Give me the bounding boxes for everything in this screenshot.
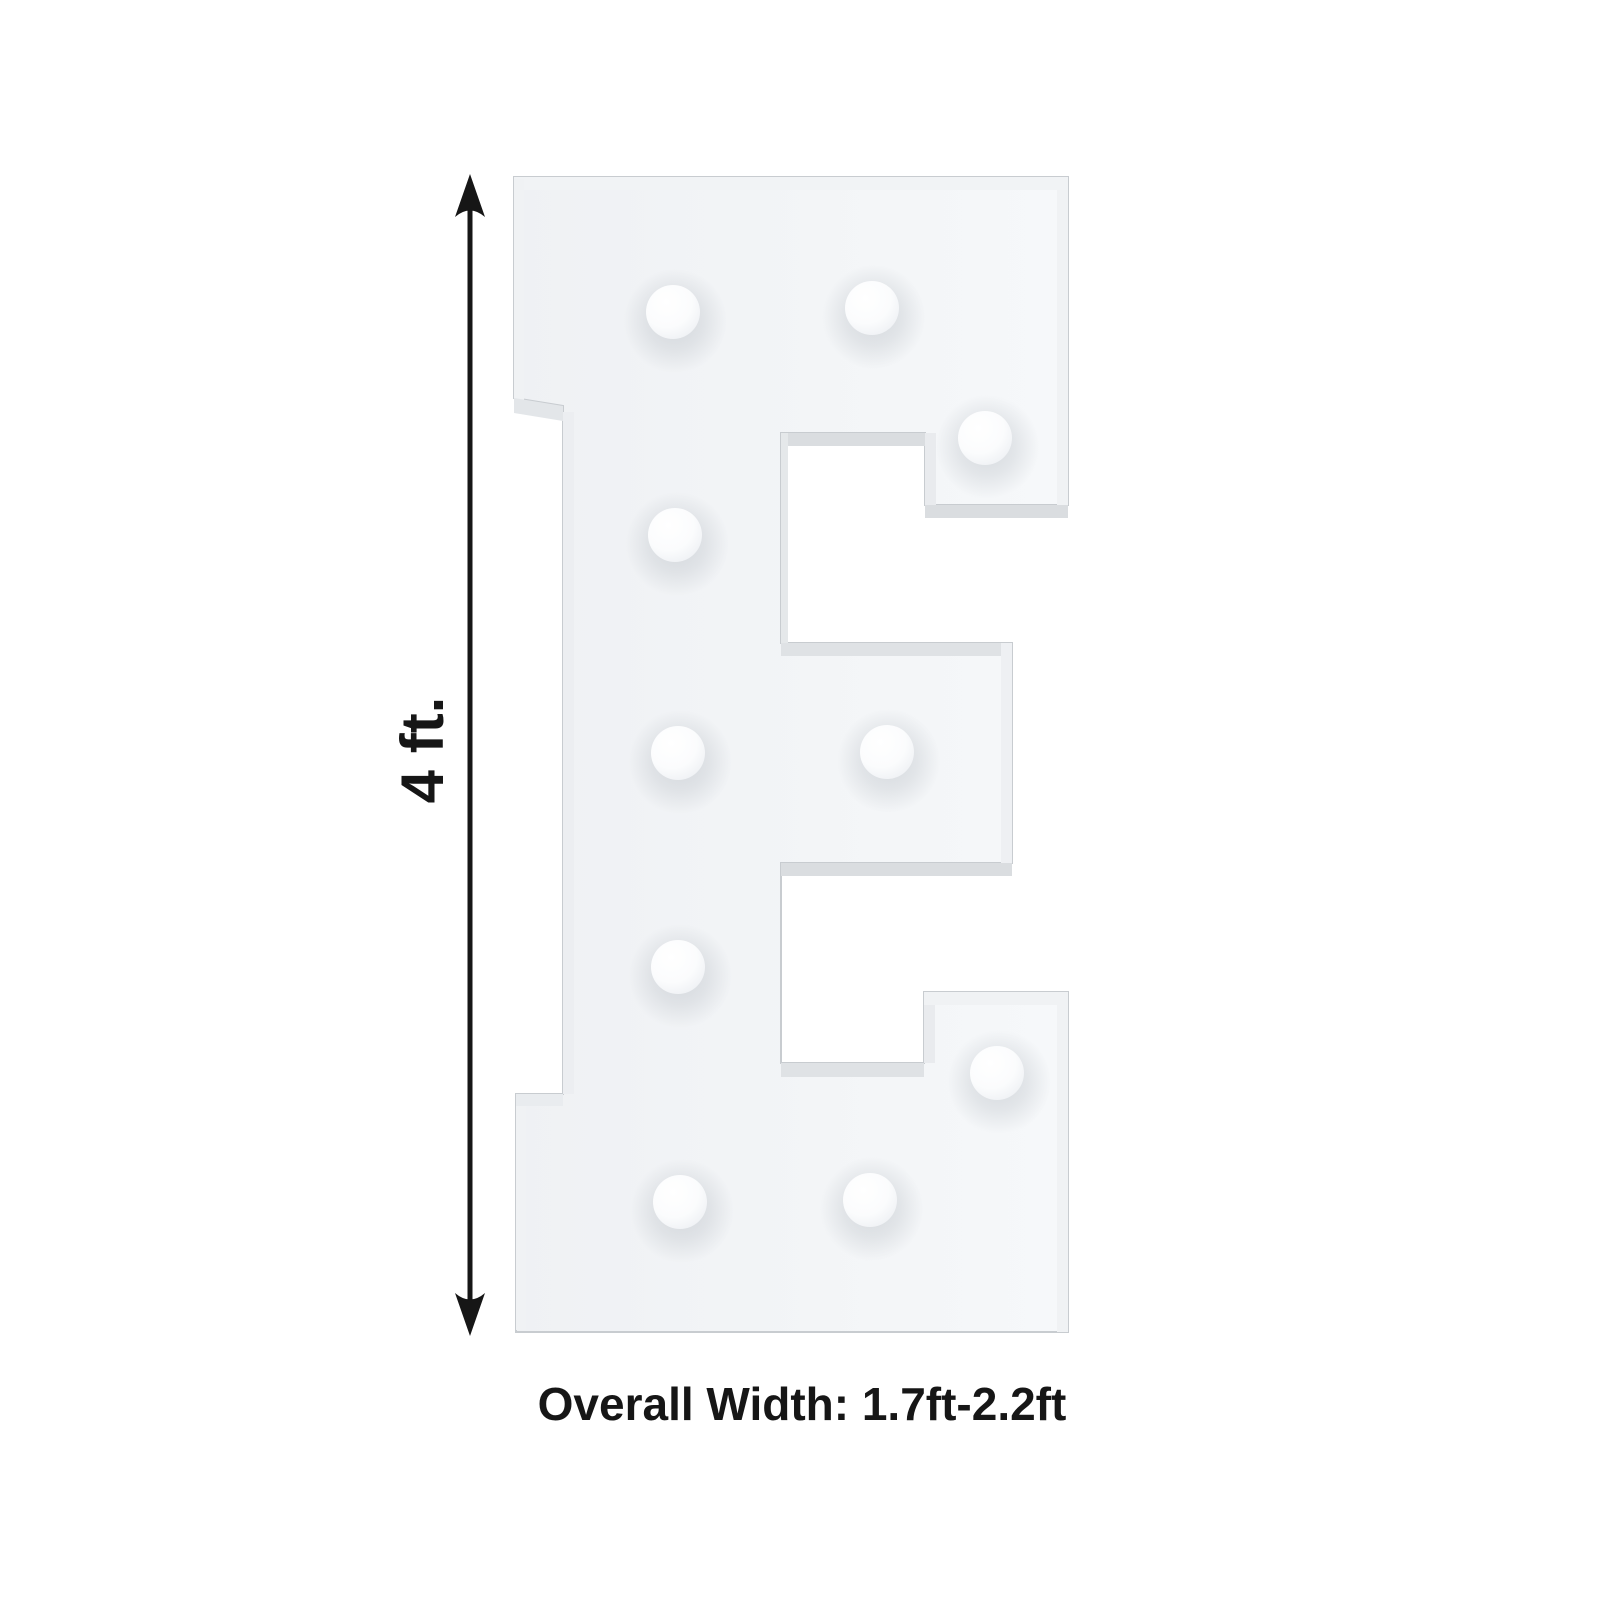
letter-bevel (781, 433, 788, 643)
letter-bevel (514, 177, 1068, 190)
marquee-letter (514, 177, 1068, 1332)
letter-bevel (1057, 1005, 1068, 1332)
light-bulb (646, 285, 700, 339)
light-bulb (648, 508, 702, 562)
letter-bevel (781, 643, 1012, 656)
letter-bevel (514, 179, 524, 400)
product-figure-svg: 4 ft. Overall Width: 1.7ft-2.2ft (0, 0, 1600, 1600)
letter-bevel (1001, 643, 1012, 863)
light-bulb (651, 940, 705, 994)
light-bulb (843, 1173, 897, 1227)
height-dimension-arrow (455, 174, 485, 1336)
letter-bevel (563, 412, 574, 1094)
light-bulb (845, 281, 899, 335)
width-label: Overall Width: 1.7ft-2.2ft (538, 1378, 1067, 1430)
light-bulb (653, 1175, 707, 1229)
height-label: 4 ft. (389, 697, 456, 804)
letter-bevel (781, 863, 1012, 876)
light-bulb (958, 411, 1012, 465)
letter-bevel (924, 992, 1068, 1005)
light-bulb (651, 726, 705, 780)
letter-bevel (781, 433, 925, 446)
letter-bevel (1057, 190, 1068, 505)
letter-bevel (516, 1106, 526, 1330)
letter-outline (514, 177, 1068, 1332)
letter-bevel (925, 433, 936, 505)
product-dimension-image: 4 ft. Overall Width: 1.7ft-2.2ft (0, 0, 1600, 1600)
light-bulb (860, 725, 914, 779)
letter-bevel (924, 1005, 935, 1063)
letter-bevel (781, 1063, 924, 1077)
letter-bevel (925, 505, 1068, 518)
letter-bevel (516, 1094, 563, 1106)
light-bulb (970, 1046, 1024, 1100)
